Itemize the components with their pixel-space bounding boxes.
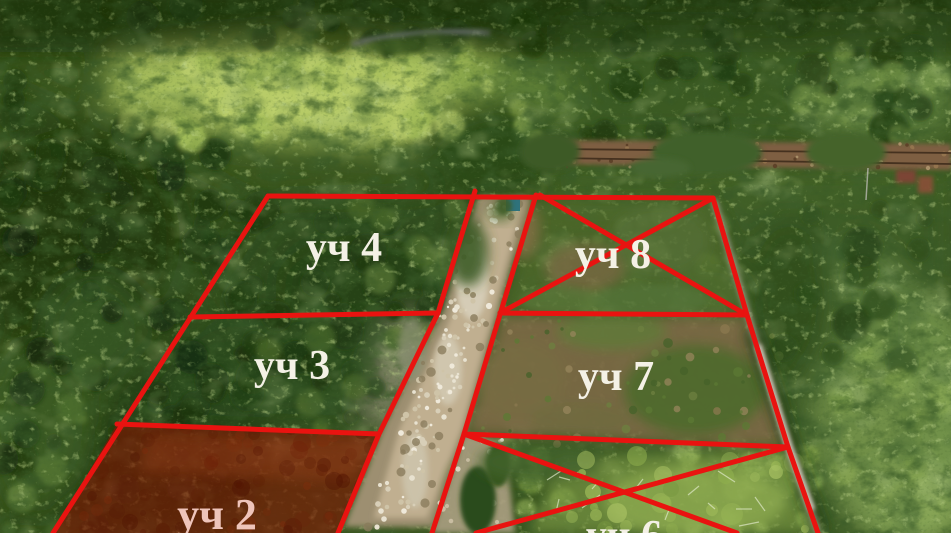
- svg-text:уч 8: уч 8: [575, 232, 651, 278]
- svg-text:уч 7: уч 7: [578, 354, 654, 400]
- svg-text:уч 6: уч 6: [586, 513, 662, 533]
- svg-text:уч 3: уч 3: [254, 343, 330, 389]
- svg-text:уч 4: уч 4: [306, 225, 382, 271]
- svg-text:уч 2: уч 2: [177, 490, 257, 533]
